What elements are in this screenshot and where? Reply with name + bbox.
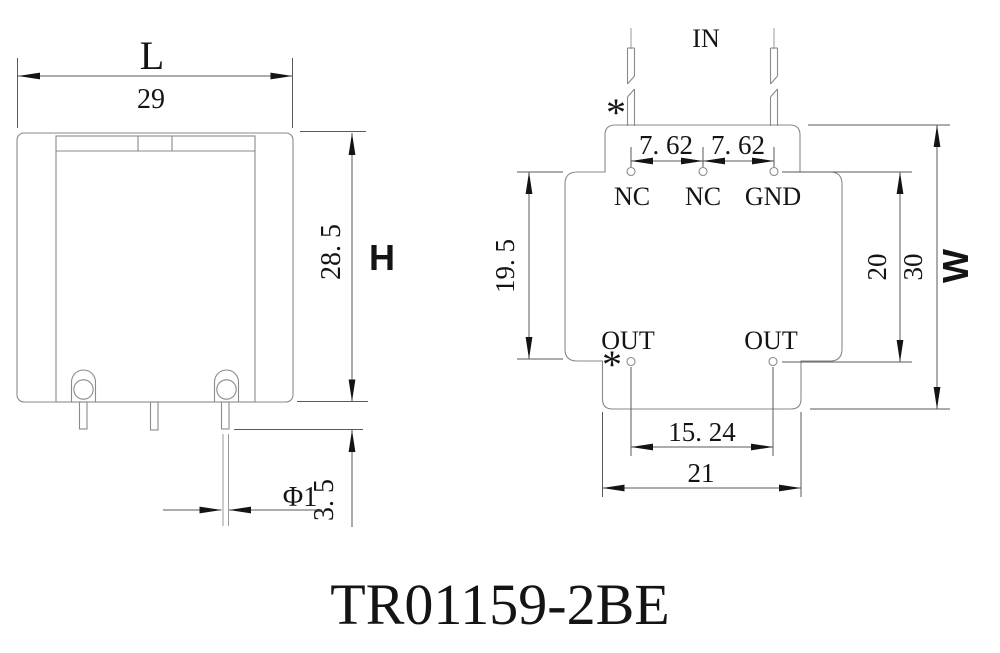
dim-width-value: 29	[137, 84, 165, 115]
arrowhead-up	[897, 172, 904, 194]
arrowhead-left	[18, 73, 40, 80]
pin-label-nc2: NC	[685, 182, 721, 211]
dim-total-depth: 30 W	[808, 125, 976, 409]
arrowhead-down	[897, 340, 904, 362]
dim-pin-diameter-value: Φ1	[283, 482, 317, 513]
mounting-ear-right	[215, 370, 239, 402]
dim-front-height: 28. 5 H	[297, 132, 395, 402]
arrowhead-right	[779, 485, 801, 492]
break-slash	[628, 89, 635, 97]
dim-width-letter: L	[140, 33, 164, 78]
pin-label-nc1: NC	[614, 182, 650, 211]
in-label: IN	[692, 24, 720, 53]
arrowhead-right	[751, 444, 773, 451]
pin-hole-out1	[627, 358, 635, 366]
dim-pitch-right-value: 7. 62	[711, 130, 765, 160]
arrowhead-left	[603, 485, 625, 492]
part-number-title: TR01159-2BE	[330, 572, 669, 637]
dim-total-depth-value: 30	[898, 254, 928, 281]
pin-hole-nc2	[699, 168, 707, 176]
arrowhead-down	[526, 337, 533, 359]
arrowhead-up	[349, 430, 356, 452]
arrowhead-down	[349, 380, 356, 402]
mounting-ear-left	[72, 370, 96, 402]
pin-label-gnd: GND	[745, 182, 801, 211]
front-pin-2	[151, 402, 159, 430]
dim-front-width: L 29	[18, 33, 293, 128]
dim-body-depth-value: 20	[862, 254, 892, 281]
input-lead-left	[628, 28, 635, 126]
dim-depth-letter: W	[935, 249, 976, 283]
front-pin-1	[80, 402, 88, 429]
pin-hole-nc1	[627, 168, 635, 176]
arrowhead-up	[934, 125, 941, 147]
dim-out-pitch-value: 15. 24	[668, 417, 736, 447]
break-slash	[771, 76, 778, 84]
arrowhead-left	[229, 507, 251, 514]
break-slash	[771, 89, 778, 97]
dim-height-value: 28. 5	[316, 224, 347, 280]
dim-body-depth: 20	[782, 172, 912, 362]
dim-bottom-width-value: 21	[688, 458, 715, 488]
arrowhead-down	[934, 387, 941, 409]
polarity-star-top: *	[606, 90, 626, 135]
dim-pin-row-span: 19. 5	[490, 172, 563, 359]
input-lead-right	[771, 28, 778, 126]
arrowhead-up	[349, 133, 356, 155]
arrowhead-up	[526, 172, 533, 194]
pin-label-out2: OUT	[744, 326, 798, 355]
break-slash	[628, 76, 635, 84]
dim-pitch-left-value: 7. 62	[639, 130, 693, 160]
polarity-star-bottom: *	[602, 342, 622, 387]
dim-height-letter: H	[369, 237, 395, 278]
front-view	[17, 133, 293, 526]
front-pin-3	[222, 402, 230, 429]
technical-drawing: L 29 28. 5 H 3. 5 Φ1	[0, 0, 1000, 653]
arrowhead-right	[271, 73, 293, 80]
pin-layout-view: IN * NC NC GND OUT OUT *	[565, 24, 842, 409]
mounting-hole-left	[74, 380, 93, 399]
drawing-page: L 29 28. 5 H 3. 5 Φ1	[0, 0, 1000, 653]
arrowhead-right	[200, 507, 222, 514]
pin-hole-gnd	[770, 168, 778, 176]
dim-pin-rows-value: 19. 5	[490, 239, 520, 293]
dim-out-pitch: 15. 24	[631, 367, 773, 456]
dim-pin-diameter: Φ1	[163, 482, 322, 513]
pin-hole-out2	[769, 358, 777, 366]
dim-input-pitch: 7. 62 7. 62	[631, 130, 774, 167]
mounting-hole-right	[217, 380, 236, 399]
arrowhead-left	[631, 444, 653, 451]
front-core-outline	[56, 136, 255, 402]
front-body-outline	[17, 133, 293, 402]
